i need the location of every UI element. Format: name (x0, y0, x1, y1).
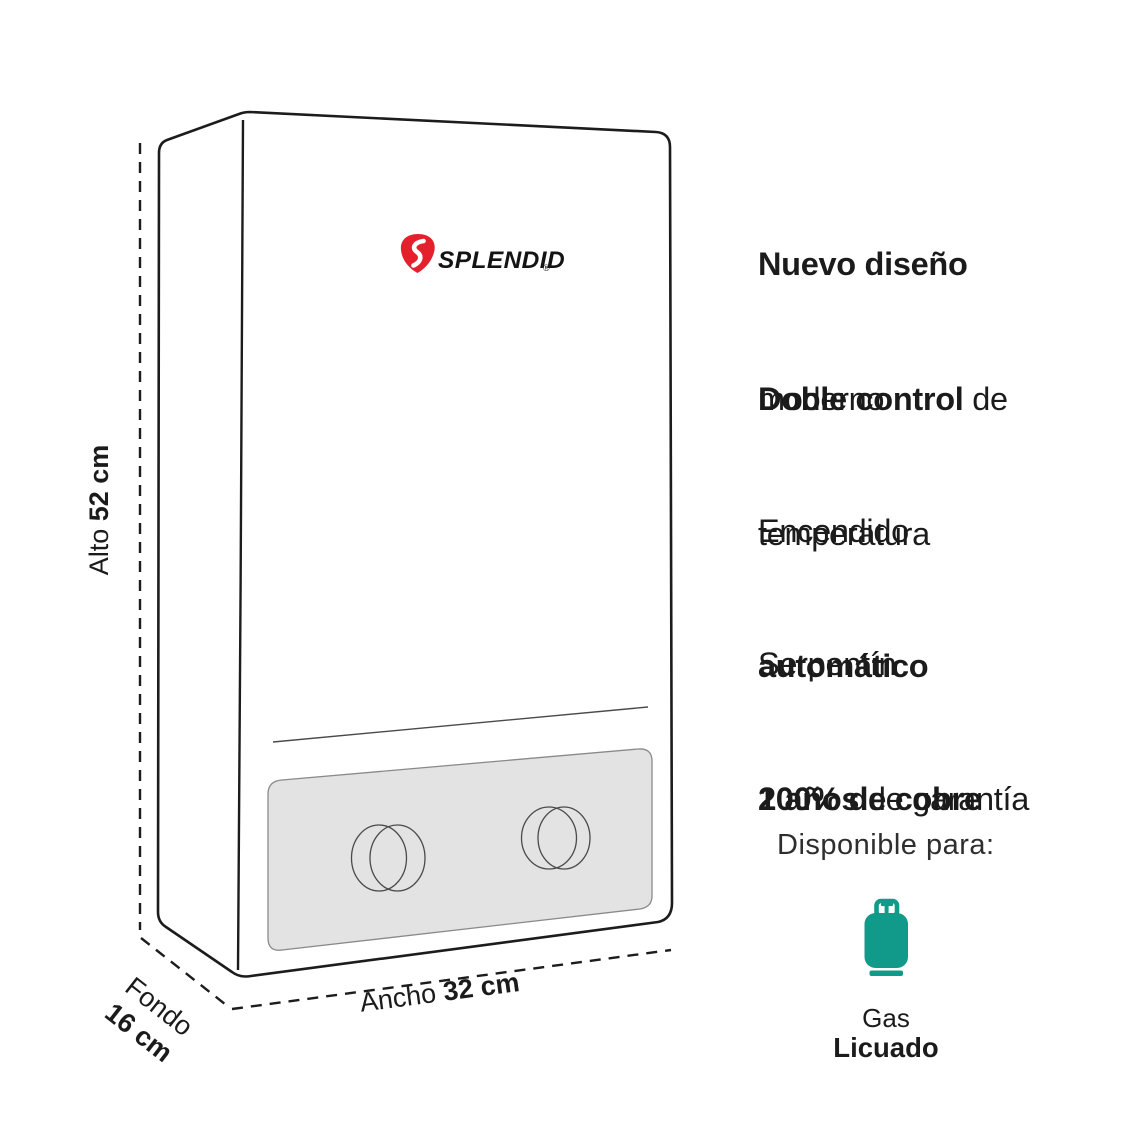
alto-label: Alto (84, 521, 114, 575)
feature-line: 2 años de garantía (758, 777, 1029, 822)
availability-title: Disponible para: (777, 829, 995, 862)
feature-line: Serpentín (758, 642, 982, 687)
feature-line: Nuevo diseño (758, 242, 968, 287)
fuel-type-label: Gas Licuado (811, 1003, 961, 1063)
fuel-line-1: Gas (811, 1003, 961, 1033)
alto-value: 52 cm (84, 445, 114, 522)
feature-line: Doble control de (758, 377, 1008, 422)
gas-cylinder-icon (856, 896, 916, 980)
feature-line: Encendido (758, 509, 928, 554)
height-dimension-label: Alto 52 cm (84, 409, 116, 611)
fuel-line-2: Licuado (811, 1033, 961, 1063)
product-infographic: { "colors": { "accent_red": "#e4202c", "… (0, 0, 1140, 1140)
registered-mark: ® (543, 263, 550, 273)
